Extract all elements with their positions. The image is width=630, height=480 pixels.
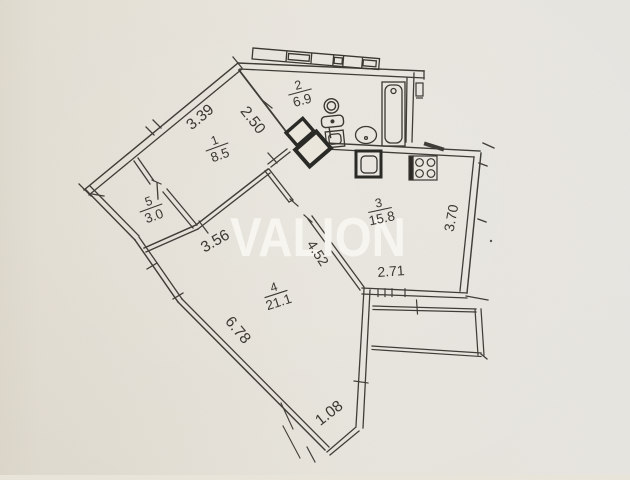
svg-text:2.71: 2.71 [377,262,406,280]
